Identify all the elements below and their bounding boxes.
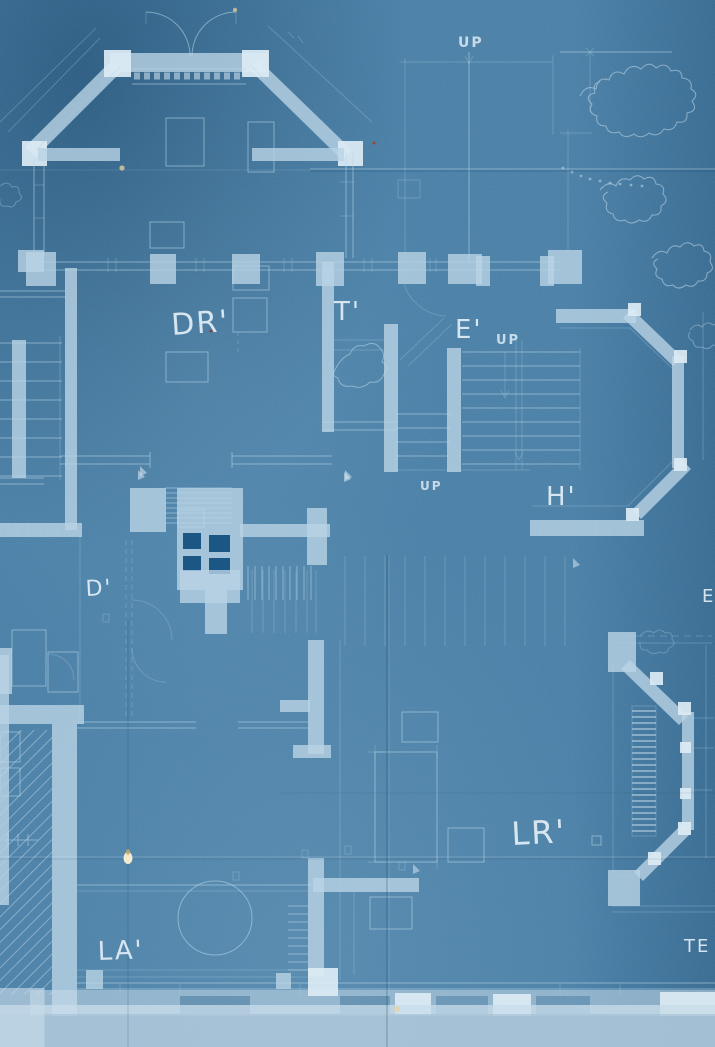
room-label-living-room: LR' bbox=[510, 812, 567, 853]
blueprint-scan: DR' T' E' H' D' LR' LA' TE E UP UP UP bbox=[0, 0, 715, 1047]
room-label-pantry: D' bbox=[85, 576, 113, 602]
annotation-up-entry: UP bbox=[496, 333, 520, 348]
room-label-toilet: T' bbox=[333, 297, 361, 327]
room-label-hall: H' bbox=[546, 482, 577, 512]
annotation-up-top: UP bbox=[458, 35, 484, 51]
room-label-edge-partial: E bbox=[702, 586, 715, 607]
room-label-entry: E' bbox=[455, 315, 483, 345]
room-label-dining-room: DR' bbox=[170, 304, 231, 343]
room-label-lavatory: LA' bbox=[97, 935, 144, 967]
terrace-hatch bbox=[0, 655, 84, 1016]
blueprint-canvas: DR' T' E' H' D' LR' LA' TE E UP UP UP bbox=[0, 0, 715, 1047]
annotation-up-center: UP bbox=[420, 479, 443, 493]
radiator bbox=[632, 706, 656, 836]
room-label-terrace-partial: TE bbox=[683, 936, 710, 957]
